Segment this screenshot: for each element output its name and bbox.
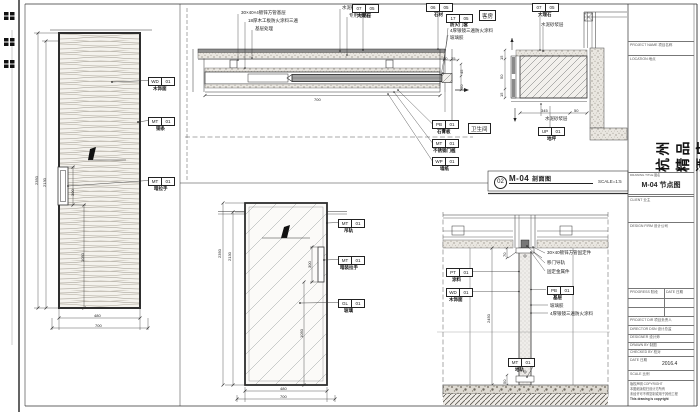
callout-code: MT [149, 118, 162, 125]
design-firm-label: DESIGN FIRM 设计公司 [630, 224, 668, 229]
dim-height-inner: 2130 [42, 178, 47, 187]
callout-code: 07 [533, 4, 546, 11]
callout-label: 铜条 [156, 126, 165, 132]
drawing-scale: SCALE=1:5 [598, 179, 622, 184]
client-label: CLIENT 业主 [630, 198, 650, 203]
dim-height: 2450 [486, 314, 491, 323]
titleblock-notes: 版权声明 COPYRIGHT 本图纸版权归设计方所有 未经许可不得复制或用于其他… [630, 382, 692, 403]
callout-code: 06 [427, 4, 440, 11]
dim-to-floor: 1050 [299, 329, 304, 338]
dim-bottom-side: 50 [574, 108, 578, 113]
callout-label: 暗装拉手 [340, 265, 358, 271]
callout-label: 大理石 [538, 12, 552, 18]
vertical-section-detail-linework [437, 212, 610, 405]
callout-label: 大理石 [357, 13, 371, 19]
dim-leaf: 480 [94, 313, 101, 318]
callout-num: 05 [366, 5, 378, 12]
dim-handle: 300 [307, 261, 312, 268]
callout-code: MT [509, 359, 522, 366]
leader-text: 4厚银镜三遍防火涂料 [550, 311, 593, 317]
callout-code: 07 [353, 5, 366, 12]
callout-num: 01 [460, 289, 472, 296]
callout-num: 05 [546, 4, 558, 11]
callout-code: WP [433, 158, 446, 165]
binding-margin-marks [4, 0, 19, 412]
leader-text: 30×40×4镀锌方管基层 [241, 10, 286, 16]
callout-num: 01 [522, 359, 534, 366]
dim-total: 700 [280, 394, 287, 399]
dim-total: 700 [95, 323, 102, 328]
door-elevation-back-linework [218, 202, 347, 403]
callout-code: MT [433, 140, 446, 147]
callout-label: 防火门套 [450, 22, 468, 28]
leader-text: 基层处理 [255, 26, 273, 32]
callout-code: MT [149, 178, 162, 185]
leader-text: 水泥砂浆层 [541, 22, 564, 28]
callout-num: 01 [446, 158, 458, 165]
callout-code: PT [447, 269, 460, 276]
leader-text: 水泥砂浆层 [545, 116, 568, 122]
staff-row: DIRECTOR DSN 设计总监 [630, 327, 672, 332]
titleblock-separator [628, 380, 694, 381]
callout-label: 基层 [553, 295, 562, 301]
dim-small: 50 [502, 380, 507, 384]
detail-number-bubble: 02 [494, 176, 507, 189]
callout-num: 01 [446, 140, 458, 147]
callout-code: WD [447, 289, 460, 296]
callout-label: 涂料 [452, 277, 461, 283]
leader-text: 玻璃胶 [450, 35, 464, 41]
callout-num: 01 [352, 220, 364, 227]
leader-text: 30×40镀锌方管固定件 [547, 250, 591, 256]
dim-small: 50 [459, 85, 464, 89]
drawing-linework [0, 0, 700, 412]
leader-text: 移门导轨 [547, 260, 565, 266]
drawing-code: M-04 [509, 174, 529, 183]
callout-code: WD [149, 78, 162, 85]
staff-row: CHECKED BY 校对 [630, 350, 661, 355]
dim-small: 70 [502, 253, 507, 257]
leader-text: 玻璃胶 [550, 303, 564, 309]
callout-label: 墙纸 [440, 166, 449, 172]
date-value: 2016.4 [662, 361, 677, 367]
dim-leaf: 480 [280, 386, 287, 391]
room-label-bathroom: 卫生间 [468, 123, 491, 134]
callout-num: 01 [552, 128, 564, 135]
leader-text: 固定金属件 [547, 269, 570, 275]
callout-code: PB [433, 121, 446, 128]
titleblock-separator [628, 298, 694, 299]
drawing-name: 剖面图 [532, 177, 552, 183]
date-row-label: DATE 日期 [630, 358, 647, 363]
callout-label: 暗拉手 [154, 186, 168, 192]
dim-small: 15 [499, 93, 504, 97]
callout-num: 01 [460, 269, 472, 276]
callout-label: 玻璃 [344, 308, 353, 314]
dim-handle: 300 [70, 189, 75, 196]
dim-height-outer: 2350 [217, 249, 222, 258]
callout-label: 石膏板 [437, 129, 451, 135]
staff-row: DESIGNER 设计师 [630, 335, 660, 340]
callout-num: 01 [162, 118, 174, 125]
leader-text: 4厚银镜三遍防火涂料 [450, 28, 493, 34]
door-elevation-front-linework [34, 30, 152, 330]
callout-num: 01 [352, 300, 364, 307]
dim-small: 20 [443, 56, 447, 61]
dim-small: 45 [459, 70, 464, 74]
scale-row-label: SCALE 比例 [630, 372, 649, 377]
plan-section-detail-linework [185, 8, 473, 180]
progress-label: PROGRESS 阶段 [630, 290, 658, 295]
callout-code: GL [339, 300, 352, 307]
callout-label: 吊轨 [344, 228, 353, 234]
callout-code: UP [539, 128, 552, 135]
staff-row: DRAWN BY 制图 [630, 343, 657, 348]
project-name-vertical: 杭州精品酒店 [653, 125, 700, 172]
dim-small: 25 [451, 56, 455, 61]
sheet-title-label: DRAWING TITLE 图名 [630, 173, 660, 177]
titleblock-project-row: PROJECT NAME 项目名称 [630, 43, 672, 48]
titleblock-separator [628, 307, 694, 308]
callout-label: 地坪 [547, 136, 556, 142]
note-line: This drawing is copyright [630, 397, 692, 402]
date-col-label: DATE 日期 [666, 290, 683, 295]
dim-to-floor: 1050 [80, 253, 85, 262]
callout-code: PB [548, 287, 561, 294]
leader-text: 18厚木工板防火涂料三遍 [248, 18, 298, 24]
titleblock-column-divider [664, 288, 665, 316]
callout-label: 木饰面 [449, 297, 463, 303]
callout-num: 01 [162, 178, 174, 185]
dim-small: 50 [499, 75, 504, 79]
callout-code: MT [339, 220, 352, 227]
callout-num: 01 [162, 78, 174, 85]
dim-bottom-main: 345 [541, 108, 548, 113]
callout-label: 石材 [434, 12, 443, 18]
dim-height-inner: 2130 [227, 252, 232, 261]
callout-label: 地轨 [515, 367, 524, 373]
callout-num: 01 [446, 121, 458, 128]
callout-label: 不锈钢门槛 [433, 148, 456, 154]
titleblock-separator [628, 196, 694, 197]
callout-code: MT [339, 257, 352, 264]
callout-num: 05 [440, 4, 452, 11]
room-label-guest: 客房 [479, 10, 496, 21]
drawing-sheet: 2350 2130 300 1050 480 700 WD01 木饰面 MT01… [0, 0, 700, 412]
dim-pocket: 700 [314, 97, 321, 102]
titleblock-location-row: LOCATION 地点 [630, 57, 656, 62]
titleblock-separator [628, 194, 694, 195]
callout-label: 木饰面 [153, 86, 167, 92]
callout-num: 01 [352, 257, 364, 264]
dim-small: 15 [499, 56, 504, 60]
drawing-title: M-04 剖面图 [509, 174, 593, 184]
callout-num: 01 [561, 287, 573, 294]
sheet-name: M-04 节点图 [628, 180, 694, 190]
titleblock-separator [628, 222, 694, 223]
staff-row: PROJECT DIR 项目负责人 [630, 318, 672, 323]
dim-height-outer: 2350 [34, 176, 39, 185]
